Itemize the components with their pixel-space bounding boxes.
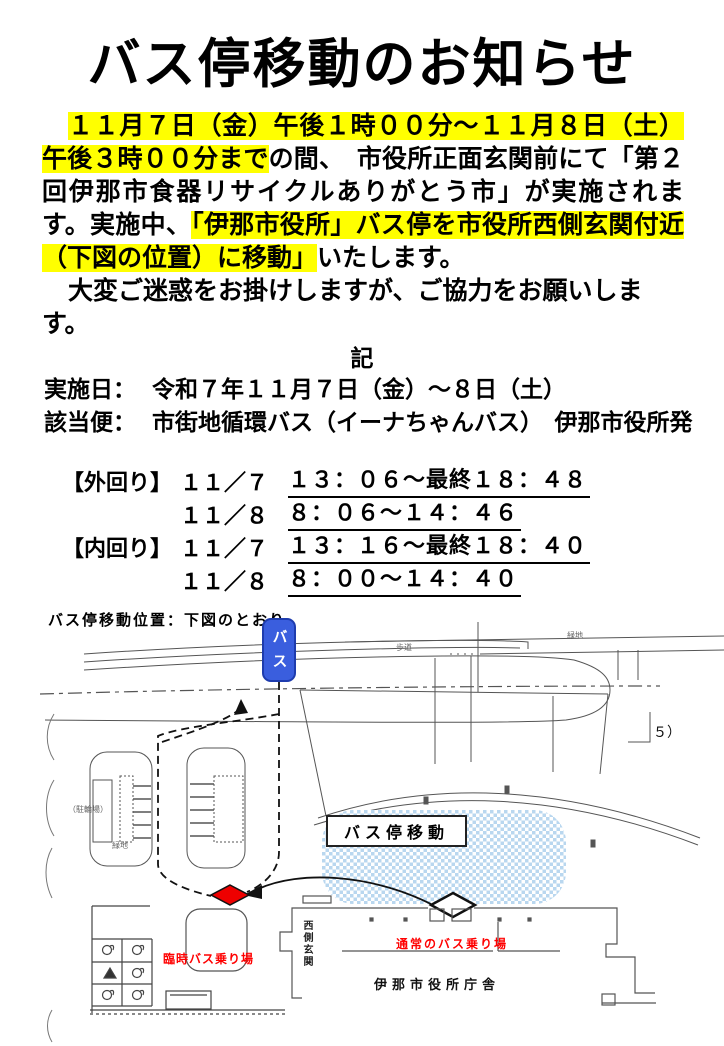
- parking-island-right: [187, 748, 245, 868]
- dashed-arrowhead: [234, 699, 248, 715]
- page-title: バス停移動のお知らせ: [20, 22, 704, 98]
- route-label: 【外回り】: [62, 468, 180, 498]
- record-heading: 記: [0, 343, 724, 373]
- intro-text-2: いたします。: [317, 244, 465, 272]
- route-label: 【内回り】: [62, 534, 180, 564]
- green-area-label-left: 緑地: [112, 840, 128, 851]
- relocation-label-box: バス停移動: [326, 815, 467, 847]
- note-5-label: ５）: [653, 722, 681, 742]
- bus-stop-marker: バス: [262, 618, 296, 682]
- temporary-stop-diamond: [211, 885, 249, 905]
- time-range: ８：０６～１４：４６: [288, 498, 521, 531]
- time-range: １３：１６～最終１８：４０: [288, 531, 590, 564]
- date-value: 令和７年１１月７日（金）～８日（土）: [152, 373, 566, 406]
- city-hall-label: 伊那市役所庁舎: [374, 974, 500, 993]
- road-centerline: [40, 686, 660, 694]
- day-label: １１／８: [180, 567, 274, 597]
- schedule-row: 【外回り】 １１／７ １３：０６～最終１８：４８: [62, 465, 724, 498]
- intro-paragraph: １１月７日（金）午後１時００分～１１月８日（土）午後３時００分までの間、 市役所…: [42, 110, 684, 275]
- temporary-stop-label: 臨時バス乗り場: [163, 950, 254, 967]
- site-map: バス バス停移動 臨時バス乗り場 通常のバス乗り場 西側玄関 伊那市役所庁舎 歩…: [0, 614, 724, 1046]
- schedule-row: １１／８ ８：００～１４：４０: [62, 564, 724, 597]
- time-range: ８：００～１４：４０: [288, 564, 521, 597]
- bus-value: 市街地循環バス（イーナちゃんバス） 伊那市役所発: [152, 406, 693, 439]
- schedule-row: 【内回り】 １１／７ １３：１６～最終１８：４０: [62, 531, 724, 564]
- bicycle-parking-label: （駐輪場）: [68, 804, 108, 815]
- day-label: １１／７: [180, 468, 274, 498]
- curb-arcs: [46, 714, 54, 1042]
- date-label: 実施日：: [44, 373, 136, 406]
- west-entrance-label: 西側玄関: [299, 920, 314, 968]
- notice-page: バス停移動のお知らせ １１月７日（金）午後１時００分～１１月８日（土）午後３時０…: [0, 22, 724, 1046]
- green-area-label-right: 緑地: [567, 630, 583, 641]
- schedule-row: １１／８ ８：０６～１４：４６: [62, 498, 724, 531]
- apology-line: 大変ご迷惑をお掛けしますが、ご協力をお願いします。: [42, 275, 684, 341]
- day-label: １１／７: [180, 534, 274, 564]
- time-range: １３：０６～最終１８：４８: [288, 465, 590, 498]
- detail-row-date: 実施日： 令和７年１１月７日（金）～８日（土）: [44, 373, 724, 406]
- sidewalk-label: 歩道: [396, 642, 412, 653]
- dashed-route-path: [158, 682, 279, 896]
- schedule-table: 【外回り】 １１／７ １３：０６～最終１８：４８ １１／８ ８：０６～１４：４６…: [62, 465, 724, 597]
- bus-label: 該当便：: [44, 406, 136, 439]
- normal-stop-label: 通常のバス乗り場: [396, 935, 508, 952]
- detail-row-bus: 該当便： 市街地循環バス（イーナちゃんバス） 伊那市役所発: [44, 406, 724, 439]
- day-label: １１／８: [180, 501, 274, 531]
- road-lines: [45, 622, 724, 816]
